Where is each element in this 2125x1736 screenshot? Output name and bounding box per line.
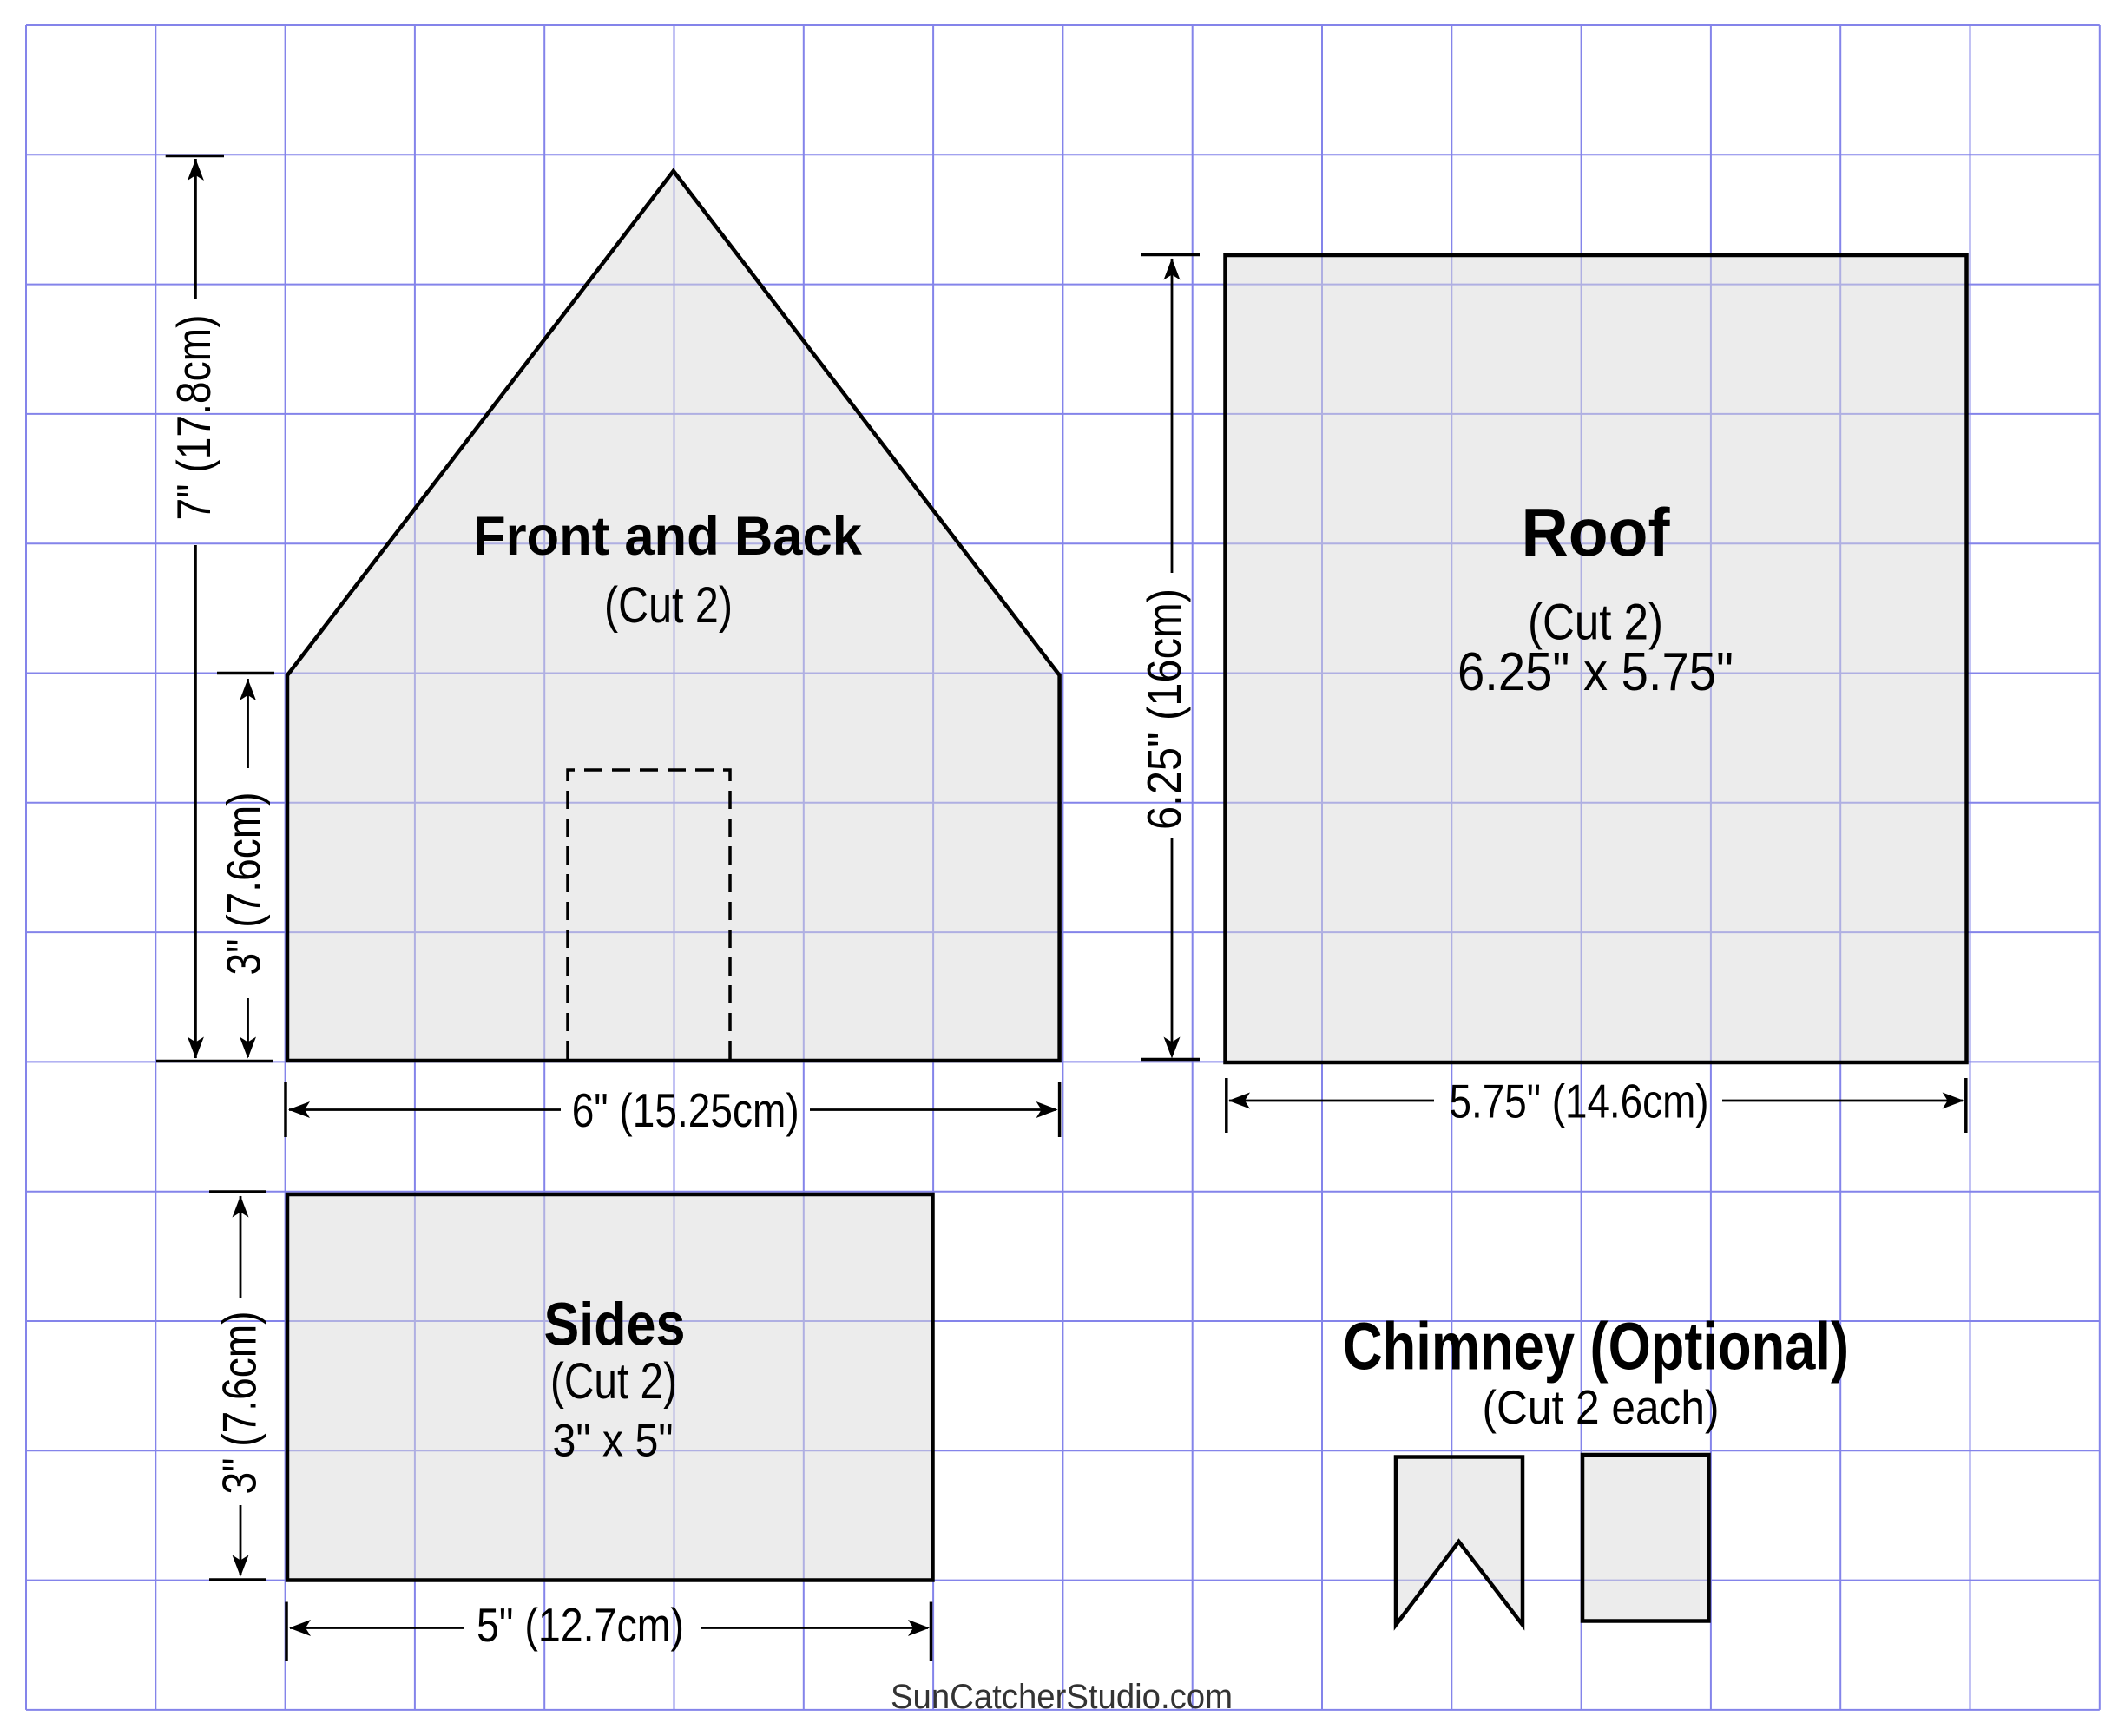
svg-text:7" (17.8cm): 7" (17.8cm) bbox=[167, 315, 220, 521]
svg-text:(Cut 2 each): (Cut 2 each) bbox=[1483, 1380, 1720, 1434]
svg-text:5" (12.7cm): 5" (12.7cm) bbox=[477, 1598, 684, 1652]
svg-text:SunCatcherStudio.com: SunCatcherStudio.com bbox=[891, 1678, 1233, 1716]
svg-text:Front and Back: Front and Back bbox=[473, 506, 863, 567]
svg-text:(Cut 2): (Cut 2) bbox=[604, 577, 733, 634]
svg-text:5.75" (14.6cm): 5.75" (14.6cm) bbox=[1450, 1075, 1709, 1128]
svg-text:6" (15.25cm): 6" (15.25cm) bbox=[572, 1083, 799, 1137]
svg-text:Roof: Roof bbox=[1522, 494, 1671, 570]
svg-text:(Cut 2): (Cut 2) bbox=[550, 1353, 677, 1410]
svg-text:6.25" x 5.75": 6.25" x 5.75" bbox=[1457, 642, 1734, 702]
svg-text:3" (7.6cm): 3" (7.6cm) bbox=[213, 1312, 266, 1495]
svg-text:6.25" (16cm): 6.25" (16cm) bbox=[1137, 589, 1191, 830]
svg-text:3" x 5": 3" x 5" bbox=[553, 1416, 674, 1467]
svg-text:Chimney (Optional): Chimney (Optional) bbox=[1343, 1310, 1849, 1384]
svg-text:3" (7.6cm): 3" (7.6cm) bbox=[217, 792, 271, 976]
svg-text:Sides: Sides bbox=[544, 1291, 686, 1358]
